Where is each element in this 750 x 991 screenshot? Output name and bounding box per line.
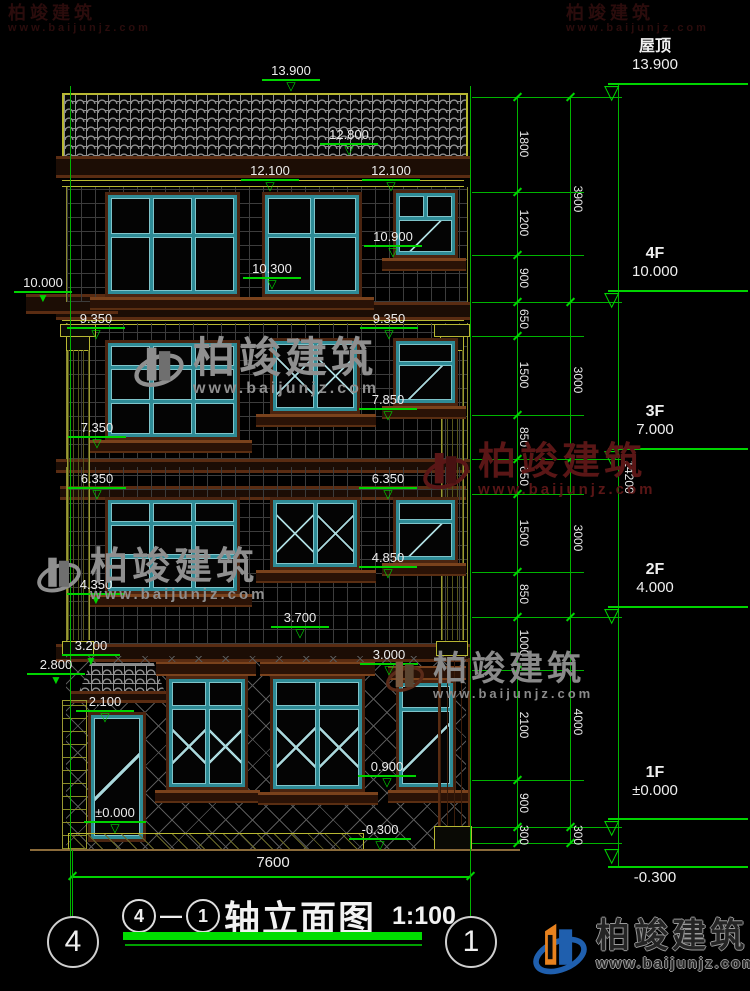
elevation-marker: 2.800▼	[27, 658, 85, 685]
elevation-marker: 6.350▽	[68, 472, 126, 499]
dim-label: 2100	[517, 695, 531, 755]
floor-marker-line	[608, 606, 748, 608]
elevation-marker: ±0.000▽	[84, 806, 146, 833]
dim-label: 4000	[571, 692, 585, 752]
elevation-marker: 4.850▽	[359, 551, 417, 578]
floor-marker-triangle: ▽	[604, 819, 619, 837]
floor-marker-line	[608, 83, 748, 85]
elevation-marker: 9.350▽	[360, 312, 418, 339]
elevation-marker: 0.900▽	[358, 760, 416, 787]
floor-marker-4f: 4F10.000	[600, 245, 710, 281]
ext-line	[472, 97, 622, 98]
window-1f-center	[270, 676, 365, 792]
elevation-marker: 2.100▽	[76, 695, 134, 722]
dim-label: 650	[517, 446, 531, 506]
ext-line	[472, 302, 622, 303]
floor-marker-triangle: ▽	[604, 291, 619, 309]
dim-label: 1800	[517, 114, 531, 174]
dim-label: 1000	[517, 613, 531, 673]
lintel-1f-center	[260, 662, 375, 676]
floor-marker-line	[608, 818, 748, 820]
sill-1f-left	[155, 790, 260, 803]
sill-1f-center	[258, 792, 378, 805]
right-column-base	[436, 641, 468, 656]
axis-bubble-4: 4	[47, 916, 99, 968]
floor-marker-connector	[618, 83, 619, 867]
elevation-marker: 6.350▽	[359, 472, 417, 499]
sill-2f-center	[256, 570, 376, 583]
watermark-top-left: 柏竣建筑 www.baijunjz.com	[8, 4, 151, 35]
ext-line	[472, 843, 622, 844]
company-logo: 柏竣建筑 www.baijunjz.com	[532, 918, 750, 978]
window-3f-center	[270, 338, 360, 414]
window-4f-left	[105, 192, 240, 297]
window-1f-left	[166, 676, 248, 790]
dim-label: 3900	[571, 169, 585, 229]
ground-line	[30, 849, 520, 851]
title-underline-thin	[125, 944, 422, 946]
bottom-dim-label: 7600	[243, 854, 303, 871]
floor-marker-1f: 1F±0.000	[600, 764, 710, 800]
elevation-marker: 12.100▽	[241, 164, 299, 191]
elevation-marker: 10.900▽	[364, 230, 422, 257]
ext-line	[472, 459, 622, 460]
title-axis-to: 1	[186, 899, 220, 933]
logo-url-text: www.baijunjz.com	[596, 955, 750, 972]
title-scale: 1:100	[392, 902, 456, 931]
dim-label: 3000	[571, 350, 585, 410]
floor-marker-line	[608, 290, 748, 292]
dim-label: 300	[517, 805, 531, 865]
watermark-top-right: 柏竣建筑 www.baijunjz.com	[566, 4, 709, 35]
dim-label: 3000	[571, 508, 585, 568]
elevation-marker: 13.900▽	[262, 64, 320, 91]
floor-marker-line	[608, 866, 748, 868]
ext-line	[472, 617, 622, 618]
elevation-marker: 10.000▼	[14, 276, 72, 303]
sill-4f-center	[248, 297, 374, 310]
right-corner-pier	[438, 658, 470, 826]
bubble-leader	[470, 850, 471, 916]
title-dash: —	[160, 903, 182, 929]
axis-line-4	[70, 86, 71, 916]
bubble-leader	[72, 850, 73, 916]
elevation-marker: 4.350▼	[67, 578, 125, 605]
floor-marker-line	[608, 448, 748, 450]
roof-tile-band	[62, 93, 468, 158]
elevation-marker: 9.350▽	[67, 312, 125, 339]
title-axis-from: 4	[122, 899, 156, 933]
floor-marker-3f: 3F7.000	[600, 403, 710, 439]
dim-label: 1200	[517, 193, 531, 253]
elevation-marker: 12.100▽	[362, 164, 420, 191]
elevation-marker: 7.850▽	[359, 393, 417, 420]
elevation-marker: 12.800▽	[320, 128, 378, 155]
ext-line	[472, 827, 622, 828]
logo-brand-text: 柏竣建筑	[596, 918, 750, 955]
axis-line-1	[470, 86, 471, 916]
right-pier-base	[434, 826, 472, 850]
floor-marker-triangle: ▽	[604, 449, 619, 467]
window-2f-center	[270, 497, 360, 570]
window-2f-left	[105, 497, 240, 594]
title-underline-thick	[123, 932, 422, 940]
floor-marker-roof: 屋顶13.900	[600, 38, 710, 74]
overall-height-dim: 14200	[622, 447, 636, 507]
elevation-marker: 10.300▽	[243, 262, 301, 289]
bottom-dim-line	[72, 876, 470, 878]
sill-4f-right	[382, 258, 466, 271]
company-logo-icon	[532, 918, 588, 978]
floor-marker-minus-300: -0.300	[600, 869, 710, 887]
sill-4f-left	[90, 297, 252, 310]
lintel-1f-left	[156, 662, 256, 676]
elevation-marker: 3.700▽	[271, 611, 329, 638]
floor-marker-triangle: ▽	[604, 607, 619, 625]
elevation-marker: 3.000▽	[360, 648, 418, 675]
dim-label: 1500	[517, 503, 531, 563]
elevation-marker: 7.350▽	[68, 421, 126, 448]
floor-marker-triangle: ▽	[604, 84, 619, 102]
floor-marker-2f: 2F4.000	[600, 561, 710, 597]
dim-label: 650	[517, 289, 531, 349]
floor-marker-triangle: ▽	[604, 847, 619, 865]
elevation-drawing-canvas: 1800 1200 900 650 1500 850 650 1500 850 …	[0, 0, 750, 991]
dim-label: 300	[571, 805, 585, 865]
dim-label: 1500	[517, 345, 531, 405]
sill-3f-center	[256, 414, 376, 427]
elevation-marker: -0.300▽	[349, 823, 411, 850]
